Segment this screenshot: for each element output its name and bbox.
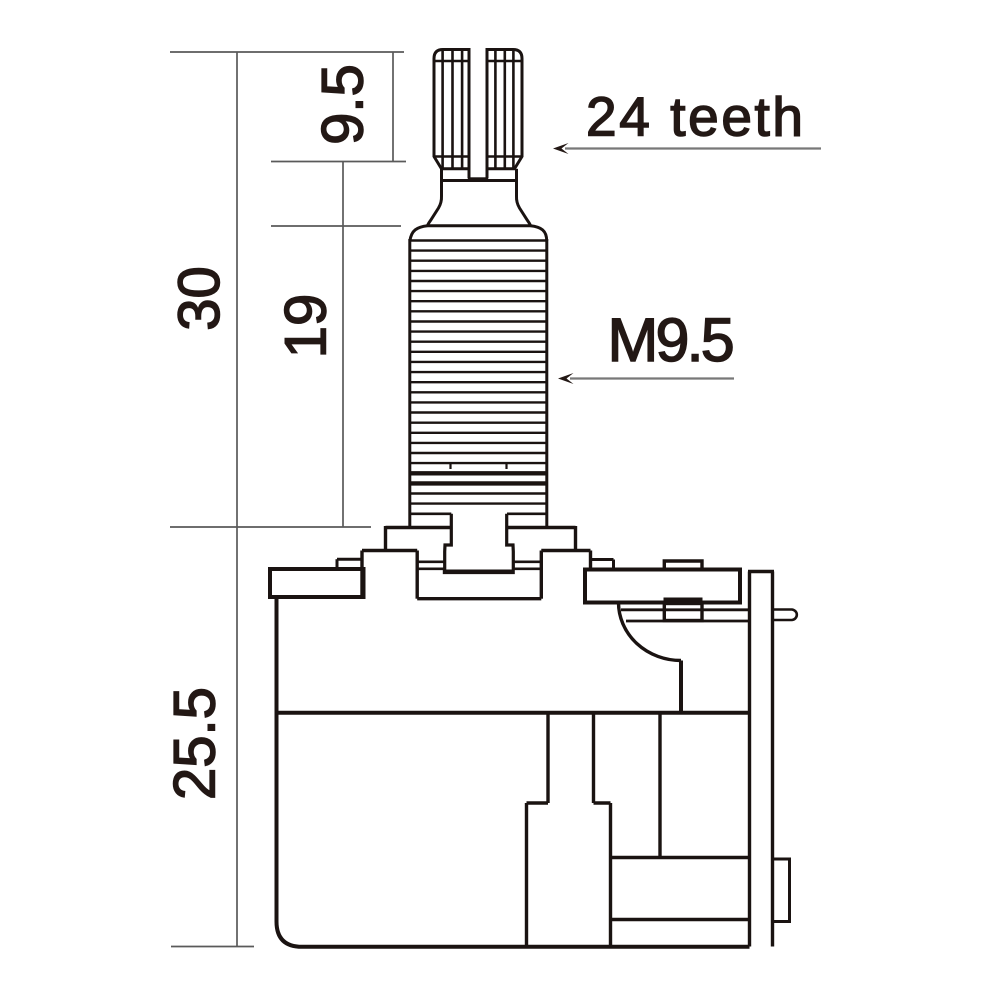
svg-text:25.5: 25.5 xyxy=(163,687,228,800)
svg-text:9.5: 9.5 xyxy=(311,64,376,145)
svg-text:30: 30 xyxy=(167,266,232,331)
svg-text:24 teeth: 24 teeth xyxy=(586,86,806,148)
svg-text:M9.5: M9.5 xyxy=(608,306,733,374)
svg-text:19: 19 xyxy=(274,294,339,359)
